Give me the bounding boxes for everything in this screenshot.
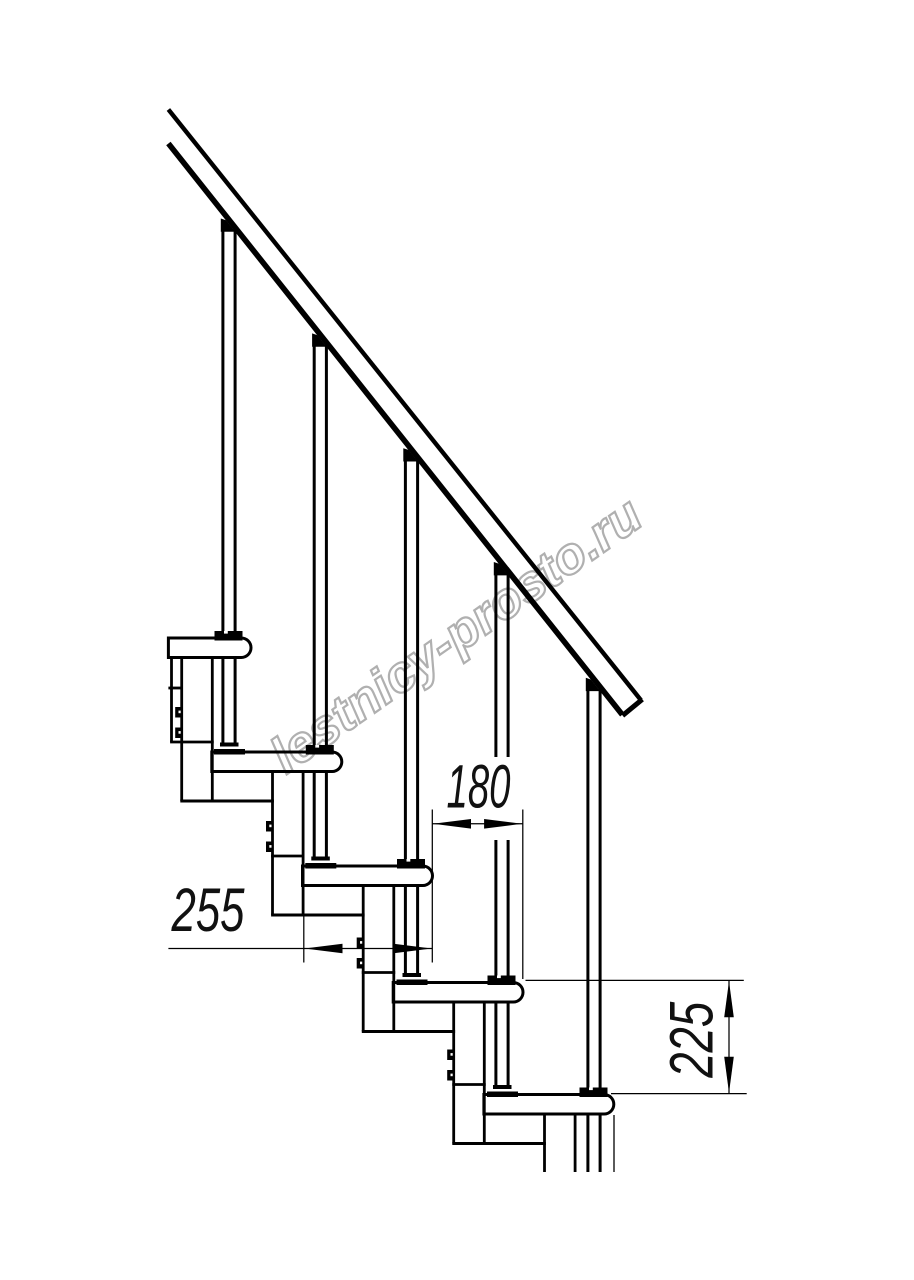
svg-text:180: 180 [447,753,511,821]
svg-text:225: 225 [658,1001,726,1079]
svg-text:255: 255 [171,876,245,944]
